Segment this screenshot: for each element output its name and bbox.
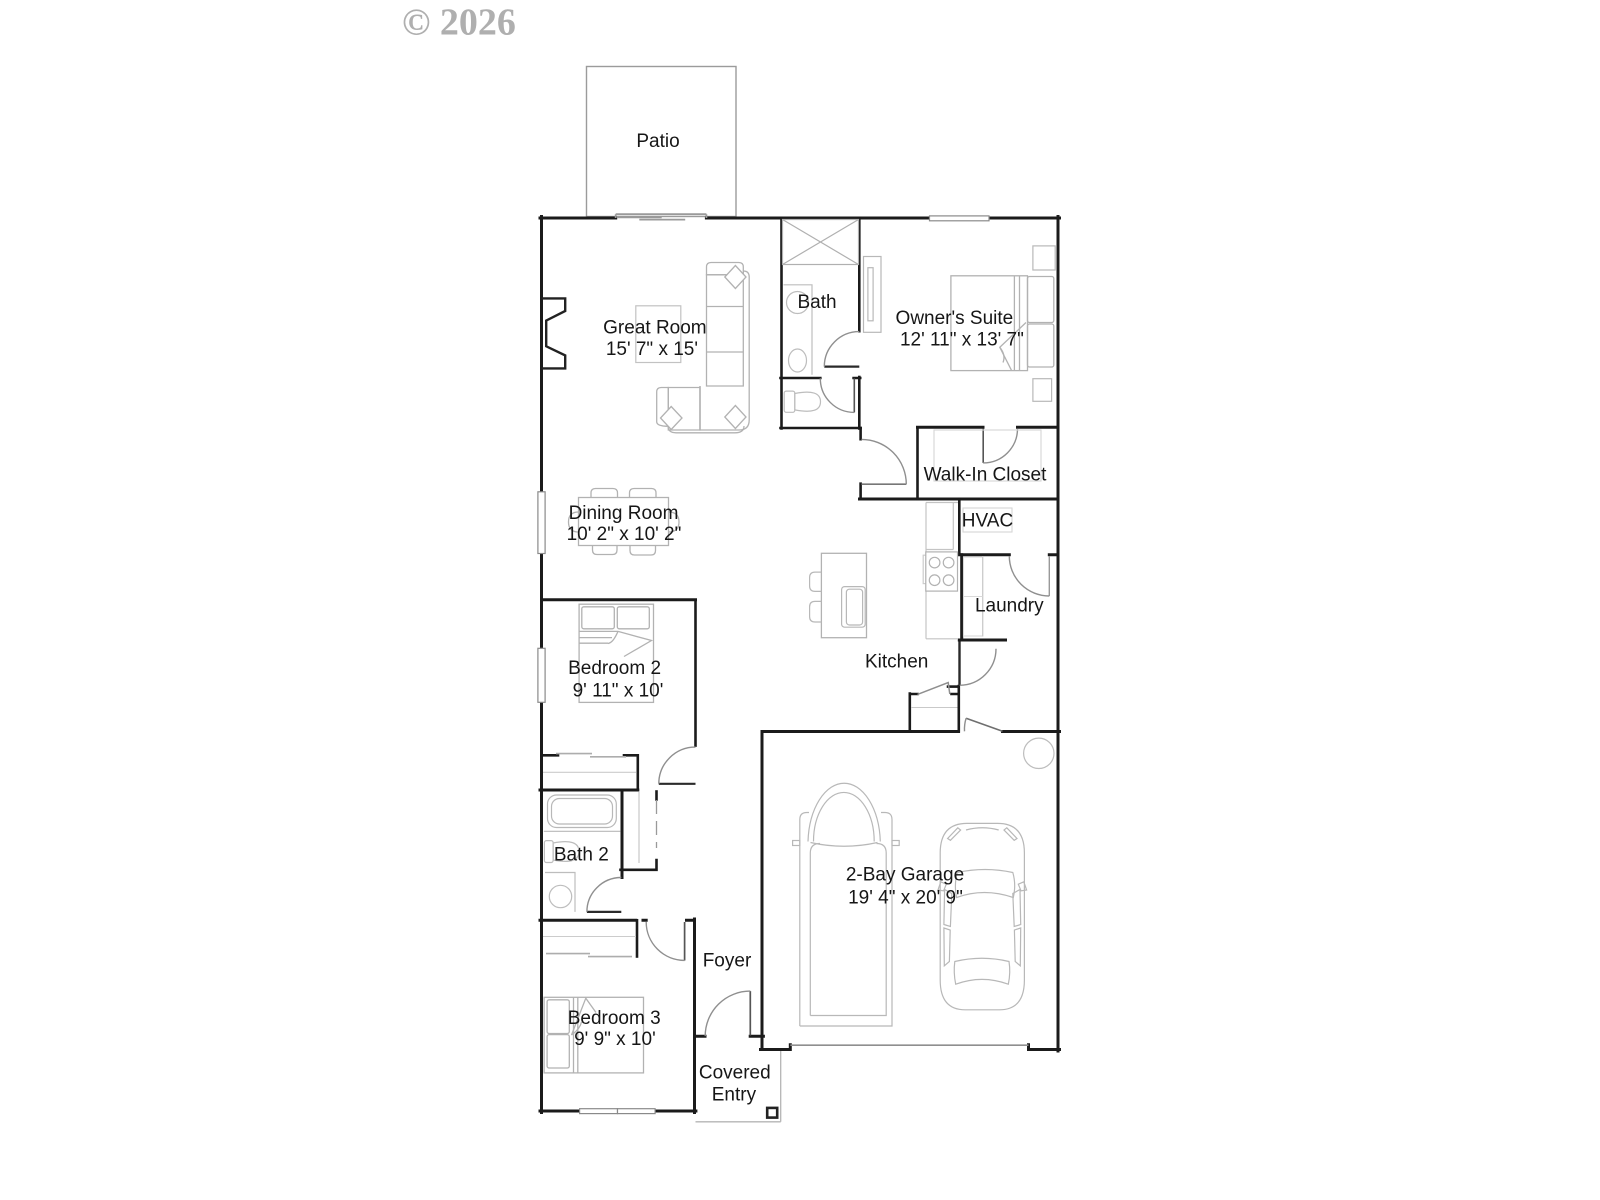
svg-text:19' 4" x 20' 9": 19' 4" x 20' 9" (848, 888, 963, 909)
svg-text:© 2026: © 2026 (402, 2, 516, 44)
svg-text:Great Room: Great Room (603, 318, 706, 339)
svg-text:12' 11" x 13' 7": 12' 11" x 13' 7" (900, 329, 1024, 350)
svg-text:Walk-In Closet: Walk-In Closet (924, 465, 1048, 486)
svg-text:Dining Room: Dining Room (569, 503, 679, 524)
svg-text:Bedroom 2: Bedroom 2 (568, 658, 661, 679)
svg-text:Owner's Suite: Owner's Suite (896, 308, 1014, 329)
svg-text:10' 2" x 10' 2": 10' 2" x 10' 2" (567, 524, 682, 545)
svg-text:Patio: Patio (636, 131, 679, 152)
svg-text:9' 9" x 10': 9' 9" x 10' (574, 1029, 656, 1050)
svg-text:Entry: Entry (712, 1085, 757, 1106)
svg-text:HVAC: HVAC (962, 511, 1013, 532)
svg-text:Laundry: Laundry (975, 596, 1044, 617)
svg-text:Covered: Covered (699, 1063, 771, 1084)
svg-text:Kitchen: Kitchen (865, 651, 928, 672)
svg-text:Bath 2: Bath 2 (554, 844, 609, 865)
svg-text:Bath: Bath (797, 292, 836, 313)
svg-text:2-Bay Garage: 2-Bay Garage (846, 865, 964, 886)
svg-text:Foyer: Foyer (703, 951, 752, 972)
svg-text:15' 7" x 15': 15' 7" x 15' (606, 339, 698, 360)
svg-text:9' 11" x 10': 9' 11" x 10' (573, 680, 664, 701)
svg-text:Bedroom 3: Bedroom 3 (568, 1008, 661, 1029)
